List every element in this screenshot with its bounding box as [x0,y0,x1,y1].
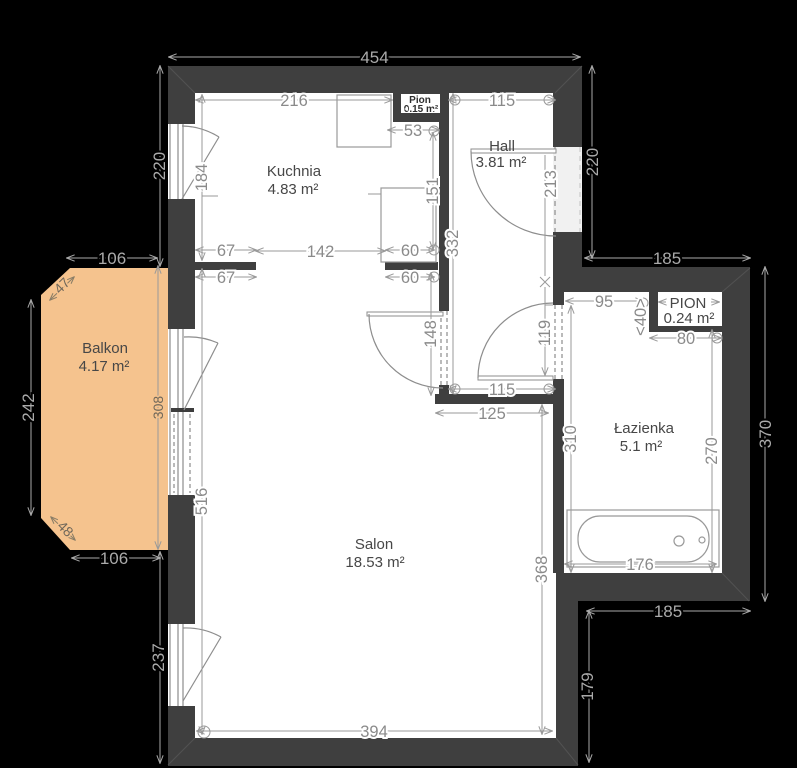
svg-text:185: 185 [653,249,681,268]
svg-text:Hall: Hall [489,138,515,155]
svg-text:220: 220 [150,152,169,180]
svg-text:332: 332 [444,230,462,258]
svg-text:308: 308 [150,396,166,420]
svg-text:115: 115 [489,381,515,399]
svg-text:216: 216 [280,92,308,110]
svg-text:454: 454 [360,48,388,67]
svg-text:310: 310 [562,425,580,453]
svg-text:Balkon: Balkon [82,340,128,357]
svg-text:242: 242 [19,393,38,421]
svg-text:394: 394 [360,723,388,741]
svg-text:119: 119 [536,320,554,346]
svg-text:176: 176 [626,556,654,574]
svg-text:213: 213 [542,170,560,198]
svg-text:53: 53 [404,122,422,140]
svg-text:125: 125 [478,405,506,423]
svg-text:142: 142 [307,243,335,261]
svg-text:60: 60 [401,242,419,260]
svg-text:220: 220 [583,148,602,176]
svg-text:0.24 m²: 0.24 m² [664,310,715,327]
svg-text:18.53 m²: 18.53 m² [345,554,404,571]
svg-text:106: 106 [100,549,128,568]
svg-text:4.17 m²: 4.17 m² [79,358,130,375]
svg-text:270: 270 [703,437,721,465]
svg-text:3.81 m²: 3.81 m² [476,154,527,171]
svg-text:80: 80 [677,330,695,348]
svg-text:370: 370 [756,420,775,448]
svg-text:67: 67 [217,269,235,287]
svg-text:151: 151 [424,177,442,205]
svg-text:516: 516 [193,488,211,516]
svg-text:95: 95 [595,293,613,311]
svg-text:184: 184 [193,164,211,192]
svg-text:Kuchnia: Kuchnia [267,163,322,180]
svg-text:5.1 m²: 5.1 m² [620,438,663,455]
svg-text:67: 67 [217,242,235,260]
svg-text:60: 60 [401,269,419,287]
svg-text:185: 185 [654,602,682,621]
svg-text:148: 148 [422,320,440,348]
svg-text:4.83 m²: 4.83 m² [268,181,319,198]
svg-text:Łazienka: Łazienka [614,420,675,437]
svg-text:179: 179 [578,672,597,700]
svg-text:115: 115 [489,92,515,110]
svg-text:368: 368 [533,556,551,584]
svg-text:106: 106 [98,249,126,268]
svg-text:237: 237 [149,643,168,671]
svg-text:<40>: <40> [632,298,650,336]
svg-text:Salon: Salon [355,536,393,553]
